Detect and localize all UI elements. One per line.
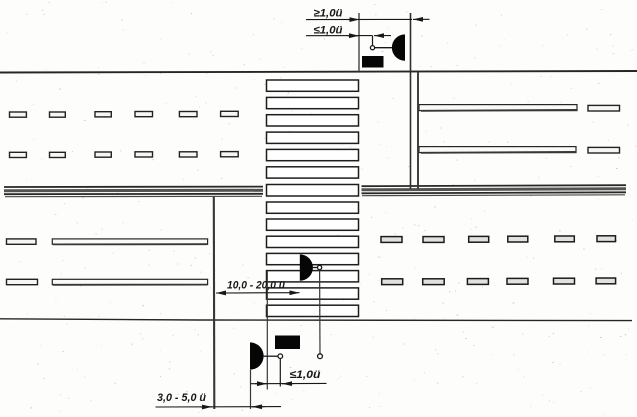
svg-text:10,0 - 20,0 ü: 10,0 - 20,0 ü — [227, 280, 285, 292]
svg-text:3,0 - 5,0 ü: 3,0 - 5,0 ü — [157, 392, 206, 404]
svg-text:≤1,0ü: ≤1,0ü — [290, 369, 321, 381]
svg-text:≤1,0ü: ≤1,0ü — [314, 25, 343, 37]
svg-text:≥1,0ü: ≥1,0ü — [314, 8, 343, 20]
